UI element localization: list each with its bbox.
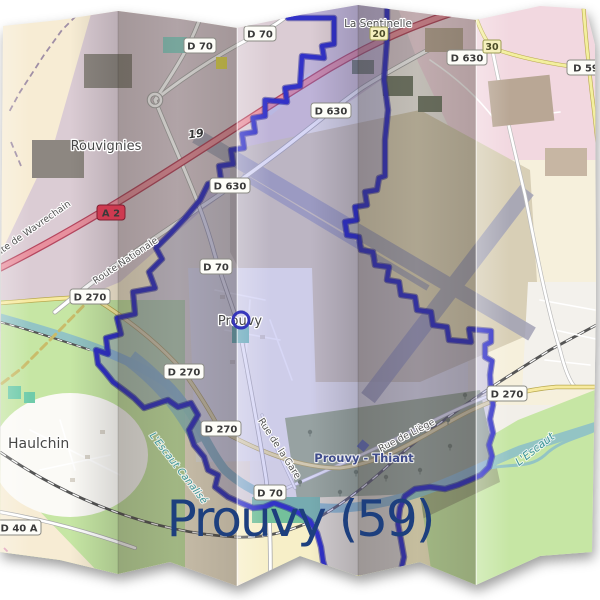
map-title: Prouvy (59)	[167, 490, 434, 548]
shield-d270-2: D 270	[164, 364, 204, 379]
shield-d630-3: D 630	[447, 50, 487, 65]
svg-text:D 59: D 59	[573, 64, 599, 75]
shield-d630-2: D 630	[311, 103, 351, 118]
shield-d70-3: D 70	[200, 259, 232, 274]
exit-number-19: 19	[188, 126, 205, 141]
shield-d70-1: D 70	[184, 38, 216, 53]
station-label: Prouvy - Thiant	[314, 451, 414, 465]
place-label-haulchin: Haulchin	[8, 436, 69, 452]
shield-d70-2: D 70	[244, 26, 276, 41]
svg-text:D 630: D 630	[214, 182, 247, 193]
folded-paper: Rouvignies La Sentinelle Prouvy Haulchin…	[0, 0, 600, 600]
svg-text:D 270: D 270	[491, 390, 524, 401]
svg-text:30: 30	[485, 42, 499, 53]
shield-d270-4: D 270	[487, 386, 527, 401]
svg-text:A 2: A 2	[102, 209, 120, 220]
shield-d270-3: D 270	[201, 421, 241, 436]
svg-text:D 270: D 270	[168, 368, 201, 379]
svg-text:D 630: D 630	[315, 107, 348, 118]
svg-text:D 70: D 70	[187, 42, 213, 53]
svg-text:20: 20	[372, 29, 386, 40]
svg-text:D 70: D 70	[203, 263, 229, 274]
exit-badge-30: 30	[483, 40, 501, 53]
exit-badge-20: 20	[370, 27, 388, 40]
map-canvas[interactable]: Rouvignies La Sentinelle Prouvy Haulchin…	[0, 0, 600, 600]
shield-a2: A 2	[97, 205, 125, 220]
map-stage: Rouvignies La Sentinelle Prouvy Haulchin…	[0, 0, 600, 600]
svg-text:D 270: D 270	[205, 425, 238, 436]
svg-text:D 270: D 270	[74, 293, 107, 304]
svg-text:D 630: D 630	[451, 54, 484, 65]
svg-text:19: 19	[188, 126, 205, 141]
svg-text:D 70: D 70	[247, 30, 273, 41]
shield-d270-1: D 270	[70, 289, 110, 304]
svg-text:D 40 A: D 40 A	[1, 524, 38, 535]
place-label-rouvignies: Rouvignies	[71, 139, 142, 154]
shield-d40a: D 40 A	[0, 520, 41, 535]
shield-d59: D 59	[567, 60, 600, 75]
shield-d630-1: D 630	[210, 178, 250, 193]
